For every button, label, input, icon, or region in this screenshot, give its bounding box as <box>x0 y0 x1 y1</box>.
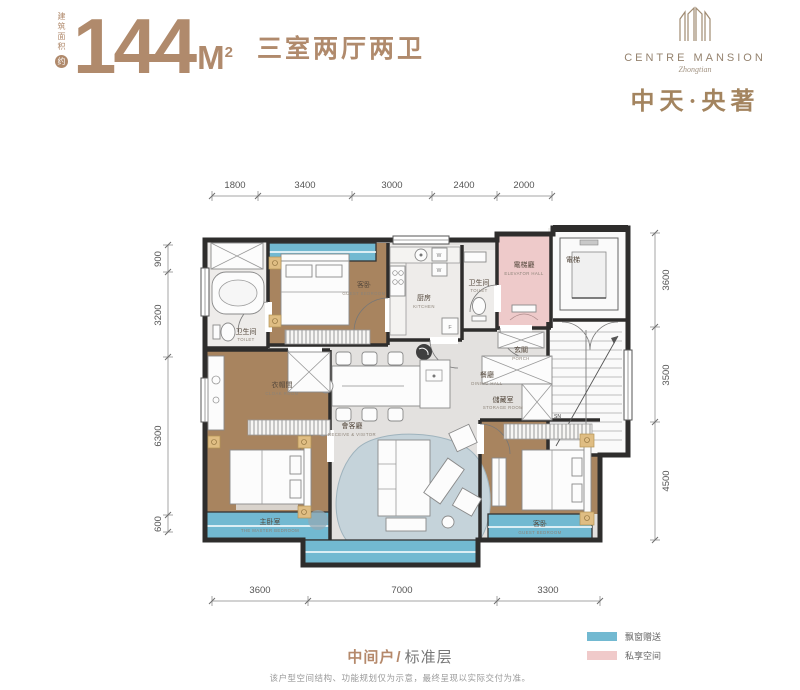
unit-type-line: 中间户/标准层 <box>0 646 800 667</box>
dim-bottom-3: 3300 <box>537 585 558 596</box>
dim-top-3: 3000 <box>381 180 402 191</box>
dim-top-2: 3400 <box>294 180 315 191</box>
floor-type: 标准层 <box>405 649 453 666</box>
brand-logo: CENTRE MANSION Zhongtian 中天·央著 <box>600 6 790 116</box>
svg-text:W: W <box>437 268 442 274</box>
disclaimer-text: 该户型空间结构、功能规划仅为示意，最终呈现以实际交付为准。 <box>0 672 800 684</box>
pendant-object <box>416 344 432 360</box>
hall-console <box>512 305 536 312</box>
layout-description: 三室两厅两卫 <box>257 29 425 65</box>
svg-text:GUEST BEDROOM: GUEST BEDROOM <box>342 291 385 296</box>
dim-top-1: 1800 <box>224 180 245 191</box>
approx-badge: 约 <box>55 55 68 68</box>
svg-text:THE MASTER BEDROOM: THE MASTER BEDROOM <box>241 528 299 533</box>
dim-left-1: 900 <box>153 251 164 267</box>
dim-right-2: 3500 <box>661 364 672 385</box>
toilet-fixture-1 <box>221 323 235 341</box>
dim-top-4: 2400 <box>453 180 474 191</box>
legend-swatch-bay-window <box>587 632 617 641</box>
label-guest-bottom: 客卧 <box>533 519 547 528</box>
label-living: 會客廳 <box>342 421 363 430</box>
dim-right-1: 3600 <box>661 269 672 290</box>
dim-left-3: 6300 <box>153 425 164 446</box>
svg-text:PORCH: PORCH <box>512 356 530 361</box>
svg-text:GUEST BEDROOM: GUEST BEDROOM <box>518 530 561 535</box>
washbasin <box>464 252 486 262</box>
coffee-table <box>386 518 426 531</box>
svg-text:TOILET: TOILET <box>237 337 254 342</box>
svg-text:KITCHEN: KITCHEN <box>413 304 435 309</box>
bed-headboard-top <box>281 254 349 261</box>
svg-text:CLOAK ROOM: CLOAK ROOM <box>265 391 298 396</box>
brand-name-en: CENTRE MANSION <box>600 52 790 64</box>
legend-label-bay-window: 飘窗赠送 <box>625 630 661 643</box>
label-stair-mark: SN <box>554 414 561 420</box>
brand-name-cn: 中天·央著 <box>600 81 790 116</box>
label-dining: 餐廳 <box>480 370 494 379</box>
label-kitchen: 厨房 <box>417 293 431 302</box>
area-title: 建筑面积 约 144 M2 三室两厅两卫 <box>55 12 425 80</box>
label-master: 主卧室 <box>260 517 281 526</box>
brand-emblem-icon <box>671 6 719 42</box>
svg-text:ELEVATOR HALL: ELEVATOR HALL <box>504 271 544 276</box>
svg-text:TOILET: TOILET <box>470 288 487 293</box>
dim-top-5: 2000 <box>513 180 534 191</box>
label-porch: 玄關 <box>514 345 528 354</box>
dim-left-2: 3200 <box>153 304 164 325</box>
nightstand <box>298 436 311 448</box>
sofa <box>378 440 430 516</box>
svg-text:W: W <box>437 253 442 259</box>
area-unit: M2 <box>197 39 233 77</box>
nightstand <box>269 257 281 269</box>
unit-type: 中间户 <box>347 649 395 666</box>
area-label-vertical: 建筑面积 <box>56 12 67 52</box>
nightstand <box>580 512 594 525</box>
cloak-wardrobe <box>248 420 330 435</box>
label-elevator-hall: 電梯廳 <box>514 260 535 269</box>
svg-text:STORAGE ROOM: STORAGE ROOM <box>483 405 523 410</box>
dim-bottom-1: 3600 <box>249 585 270 596</box>
label-elevator: 電梯 <box>566 255 580 264</box>
svg-text:DINING HALL: DINING HALL <box>471 381 503 386</box>
wardrobe-guest-top <box>285 330 370 344</box>
wardrobe-guest-bottom <box>504 424 592 439</box>
toilet-fixture-2 <box>473 298 486 315</box>
nightstand <box>298 506 311 518</box>
nightstand <box>269 315 281 327</box>
area-sublabel: 建筑面积 约 <box>55 12 68 68</box>
svg-text:RECEIVE & VISITOR: RECEIVE & VISITOR <box>328 432 376 437</box>
dim-left-4: 600 <box>153 516 164 532</box>
brand-name-script: Zhongtian <box>600 65 790 74</box>
side-table <box>442 516 454 528</box>
area-number: 144 <box>73 13 194 80</box>
legend-item-bay-window: 飘窗赠送 <box>587 630 661 643</box>
cloak-counter <box>208 356 224 430</box>
dim-bottom-2: 7000 <box>391 585 412 596</box>
label-guest-top: 客卧 <box>357 280 371 289</box>
label-cloak: 衣帽間 <box>272 380 293 389</box>
nightstand <box>580 434 594 447</box>
label-storage: 儲藏室 <box>493 395 514 404</box>
dim-right-3: 4500 <box>661 470 672 491</box>
label-bath-mid: 卫生间 <box>469 278 490 287</box>
island <box>420 360 450 408</box>
label-bath-top: 卫生间 <box>236 327 257 336</box>
